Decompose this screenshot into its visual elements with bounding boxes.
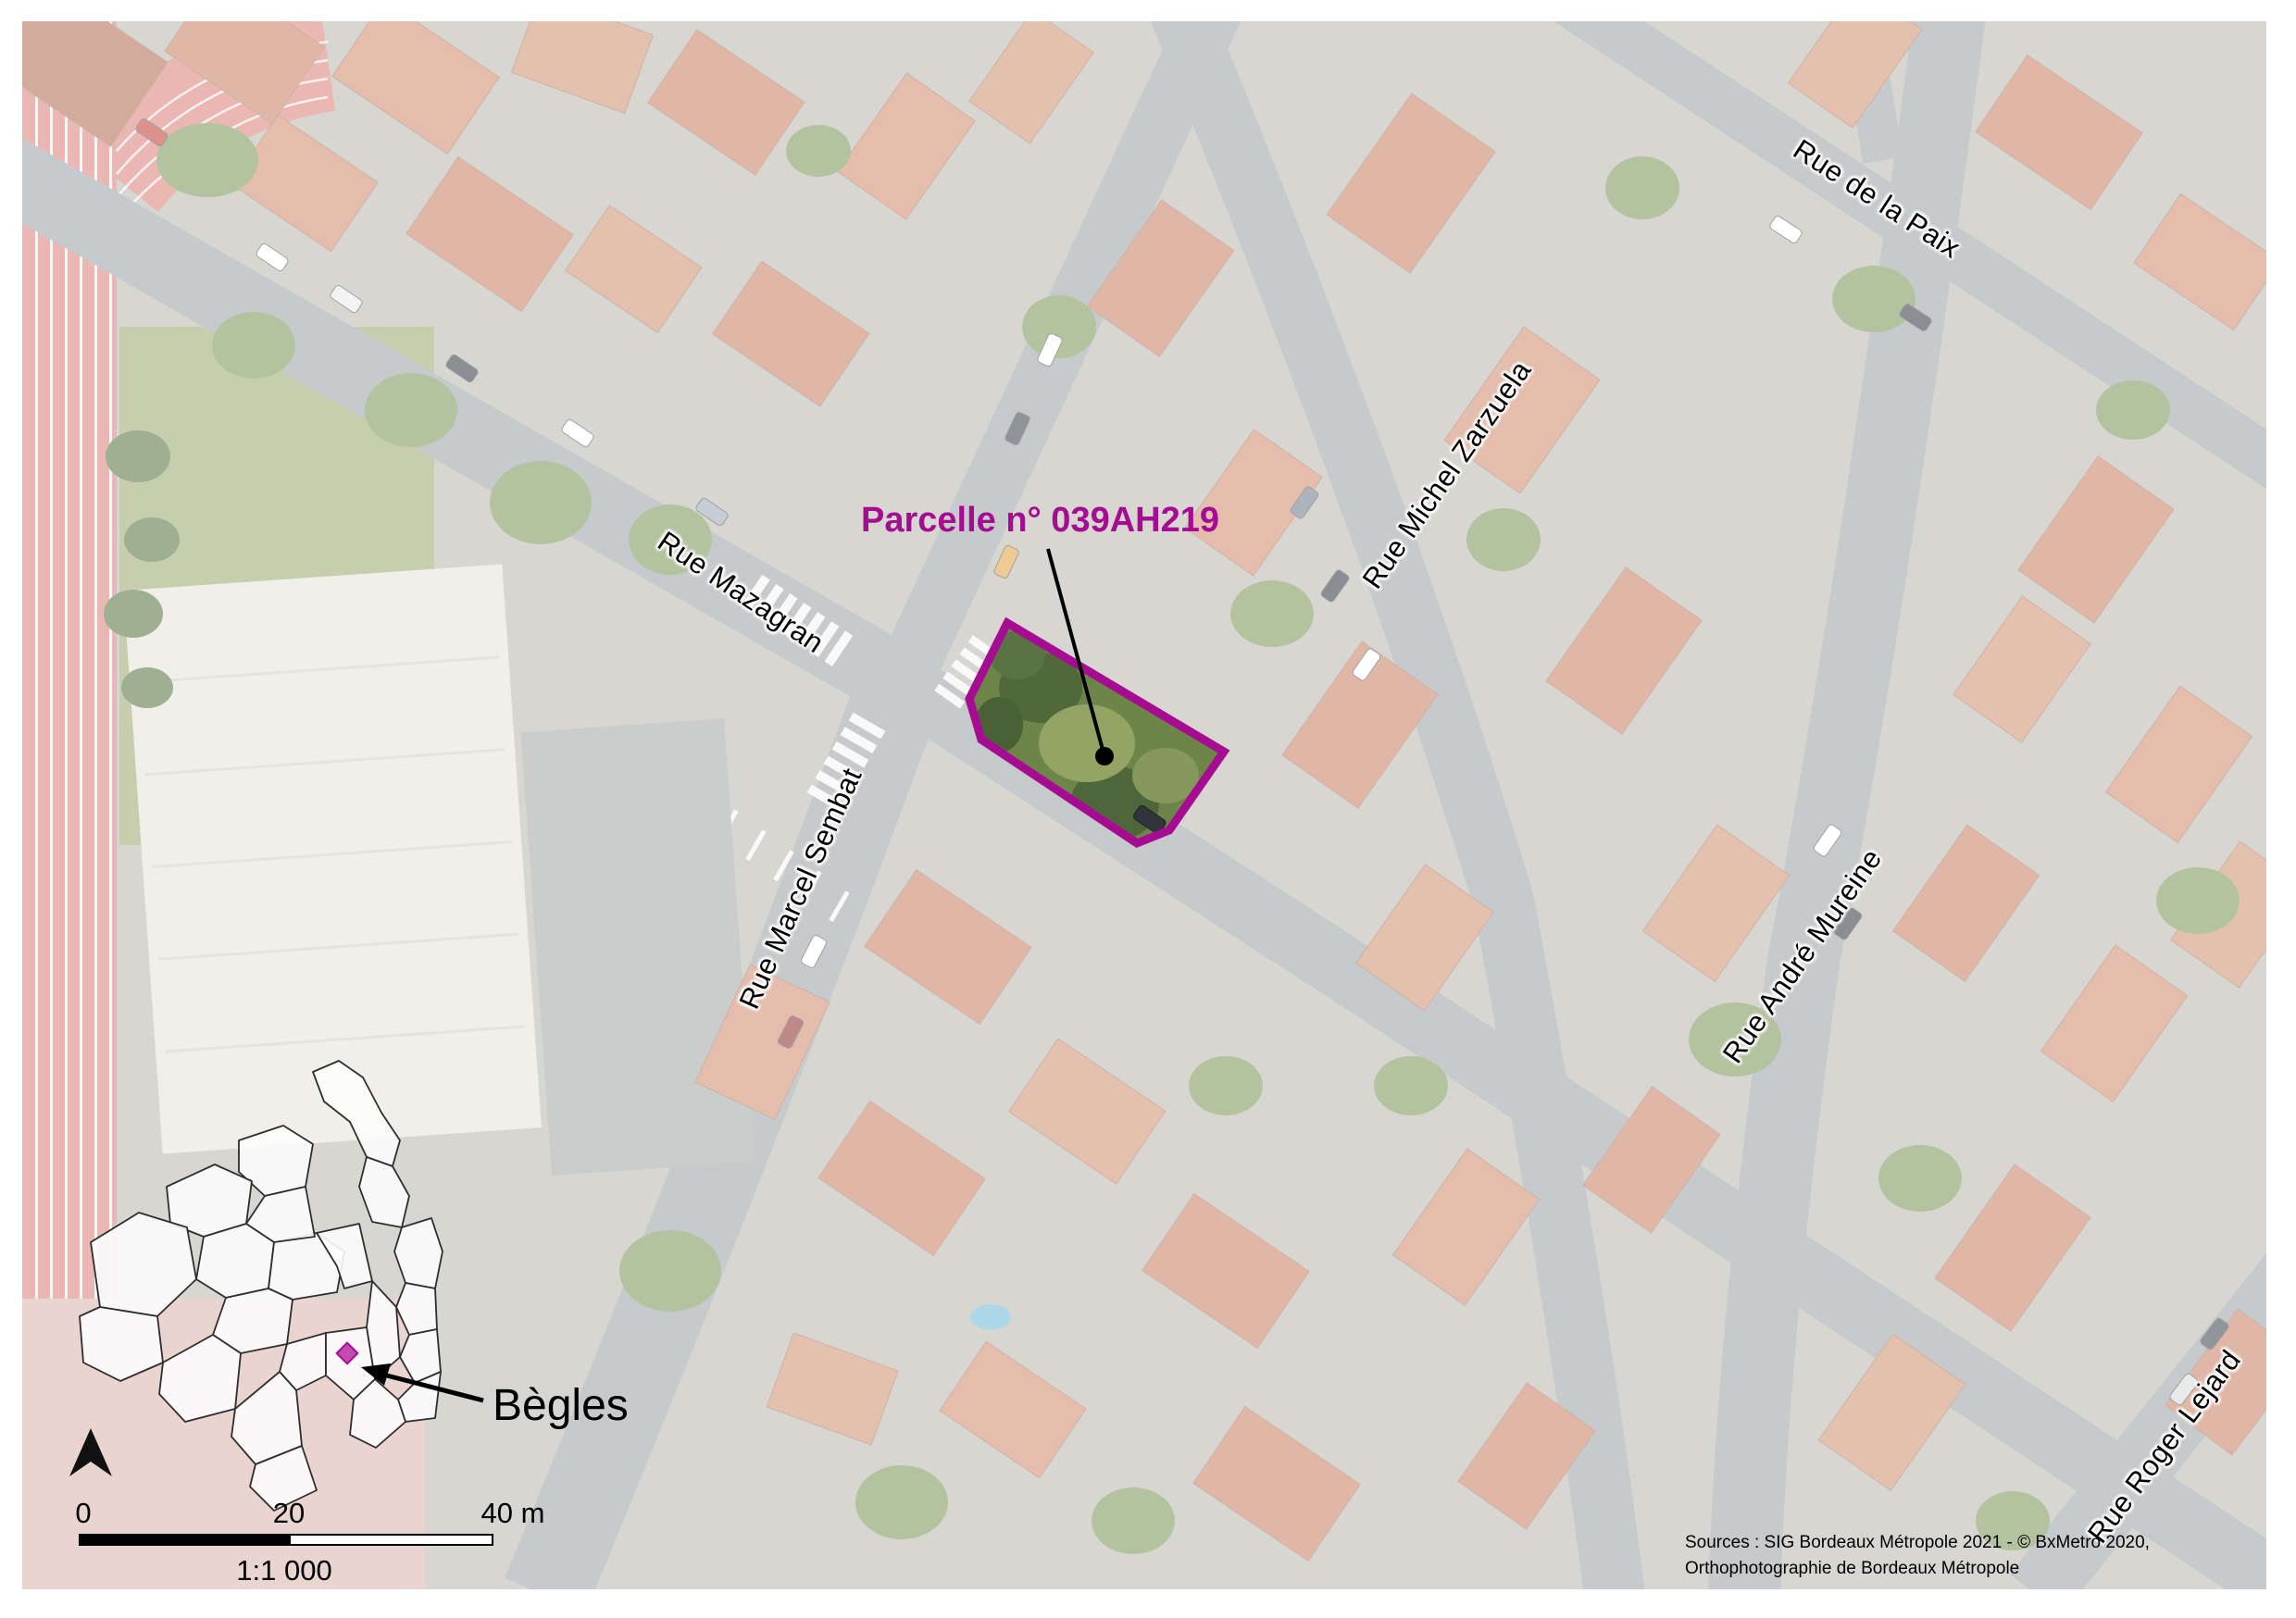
map-canvas: Rue Mazagran Rue Marcel Sembat Rue Miche…: [22, 21, 2266, 1589]
aerial-scene: [22, 21, 2266, 1589]
inset-commune-label: Bègles: [493, 1380, 629, 1431]
parcel-label: Parcelle n° 039AH219: [861, 501, 1219, 541]
parcel-marker-dot: [1095, 747, 1114, 765]
scalebar-tick-40: 40 m: [481, 1497, 545, 1530]
scale-ratio: 1:1 000: [236, 1554, 331, 1587]
scalebar-tick-0: 0: [75, 1497, 91, 1530]
scalebar-tick-20: 20: [273, 1497, 305, 1530]
scalebar-black-segment: [81, 1536, 291, 1544]
map-page: Rue Mazagran Rue Marcel Sembat Rue Miche…: [0, 0, 2296, 1618]
sources-line-2: Orthophotographie de Bordeaux Métropole: [1685, 1556, 2019, 1581]
sources-line-1: Sources : SIG Bordeaux Métropole 2021 - …: [1685, 1530, 2150, 1555]
scalebar: [79, 1534, 493, 1546]
